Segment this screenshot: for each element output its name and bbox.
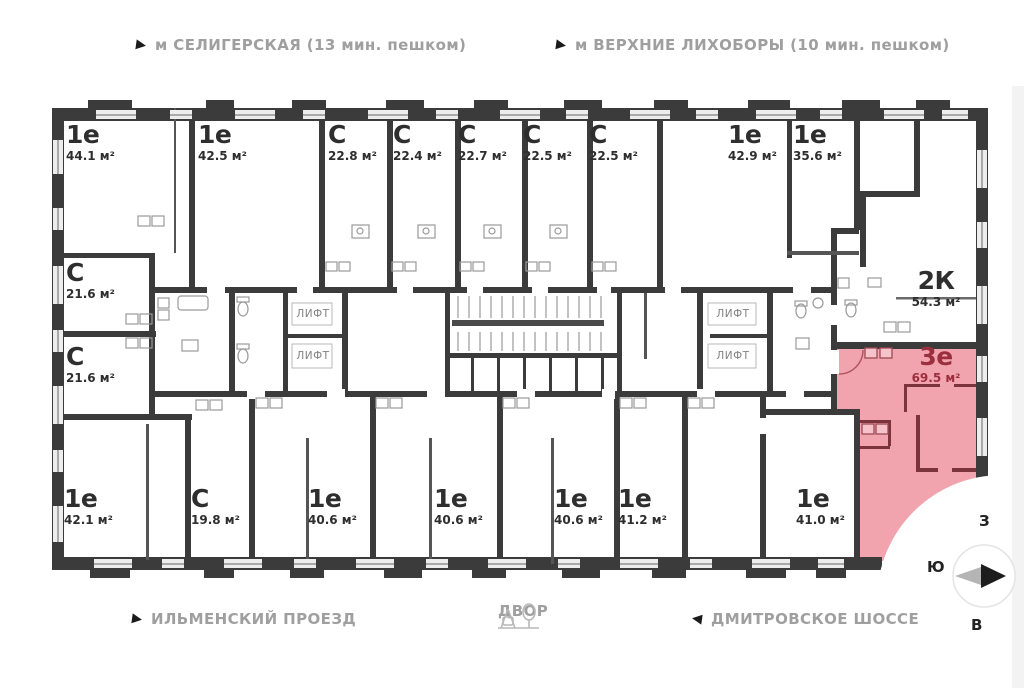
apartment-area: 41.2 м²: [618, 514, 667, 526]
apartment-unit[interactable]: С 22.5 м²: [589, 122, 638, 162]
apartment-type: 1е: [66, 122, 115, 147]
apartment-unit[interactable]: 1е 42.9 м²: [728, 122, 777, 162]
apartment-type: 2К: [900, 268, 972, 293]
apartment-unit[interactable]: 1е 40.6 м²: [434, 486, 483, 526]
apartment-unit[interactable]: С 21.6 м²: [66, 260, 115, 300]
street-label-ilmensky: ИЛЬМЕНСКИЙ ПРОЕЗД: [132, 610, 356, 628]
yard-label: ДВОР: [498, 602, 548, 620]
apartment-type: 1е: [796, 486, 845, 511]
apartment-type: 1е: [728, 122, 777, 147]
apartment-area: 42.5 м²: [198, 150, 247, 162]
compass: З Ю В: [905, 498, 1024, 658]
apartment-type: 1е: [64, 486, 113, 511]
street-label-dmitrovskoe: ДМИТРОВСКОЕ ШОССЕ: [692, 610, 919, 628]
apartment-area: 41.0 м²: [796, 514, 845, 526]
apartment-type: 1е: [434, 486, 483, 511]
apartment-area: 22.7 м²: [458, 150, 507, 162]
floor-plan: [0, 0, 1024, 688]
apartment-unit[interactable]: С 22.7 м²: [458, 122, 507, 162]
apartment-type: С: [458, 122, 507, 147]
apartment-area: 21.6 м²: [66, 372, 115, 384]
apartment-type: С: [523, 122, 572, 147]
apartment-type: 1е: [618, 486, 667, 511]
map-marker-icon: [135, 39, 146, 50]
apartment-unit[interactable]: 1е 40.6 м²: [554, 486, 603, 526]
apartment-unit[interactable]: 1е 41.2 м²: [618, 486, 667, 526]
apartment-area: 40.6 м²: [308, 514, 357, 526]
metro-label-likhobory: м ВЕРХНИЕ ЛИХОБОРЫ (10 мин. пешком): [556, 36, 950, 54]
street-label-text: ДМИТРОВСКОЕ ШОССЕ: [711, 610, 919, 628]
apartment-area: 22.8 м²: [328, 150, 377, 162]
apartment-area: 69.5 м²: [900, 372, 972, 384]
apartment-area: 22.4 м²: [393, 150, 442, 162]
apartment-area: 22.5 м²: [523, 150, 572, 162]
apartment-type: С: [589, 122, 638, 147]
map-marker-icon: [131, 613, 142, 624]
apartment-area: 40.6 м²: [434, 514, 483, 526]
apartment-type: С: [66, 344, 115, 369]
compass-south: Ю: [927, 558, 945, 576]
apartment-unit[interactable]: С 21.6 м²: [66, 344, 115, 384]
apartment-area: 40.6 м²: [554, 514, 603, 526]
apartment-type: 1е: [554, 486, 603, 511]
apartment-area: 19.8 м²: [191, 514, 240, 526]
compass-west: З: [979, 512, 990, 530]
map-marker-icon: [691, 613, 702, 624]
map-marker-icon: [555, 39, 566, 50]
apartment-unit-selected[interactable]: 3е 69.5 м²: [900, 344, 972, 384]
apartment-unit[interactable]: 1е 35.6 м²: [793, 122, 842, 162]
apartment-unit[interactable]: 1е 40.6 м²: [308, 486, 357, 526]
metro-label-seligerskaya: м СЕЛИГЕРСКАЯ (13 мин. пешком): [136, 36, 466, 54]
apartment-area: 42.1 м²: [64, 514, 113, 526]
apartment-area: 22.5 м²: [589, 150, 638, 162]
apartment-type: С: [66, 260, 115, 285]
apartment-type: 3е: [900, 344, 972, 369]
apartment-type: 1е: [198, 122, 247, 147]
street-label-text: ИЛЬМЕНСКИЙ ПРОЕЗД: [151, 610, 356, 628]
apartment-area: 21.6 м²: [66, 288, 115, 300]
stair-landing: [452, 320, 604, 326]
compass-east: В: [971, 616, 982, 634]
apartment-unit[interactable]: 1е 42.5 м²: [198, 122, 247, 162]
elevator-label: ЛИФТ: [702, 340, 764, 372]
apartment-unit[interactable]: 2К 54.3 м²: [900, 268, 972, 308]
apartment-area: 42.9 м²: [728, 150, 777, 162]
metro-label-text: м СЕЛИГЕРСКАЯ (13 мин. пешком): [155, 36, 466, 54]
apartment-unit[interactable]: С 22.8 м²: [328, 122, 377, 162]
elevator-label: ЛИФТ: [286, 299, 340, 329]
apartment-area: 44.1 м²: [66, 150, 115, 162]
apartment-type: 1е: [793, 122, 842, 147]
apartment-unit[interactable]: 1е 42.1 м²: [64, 486, 113, 526]
elevator-label: ЛИФТ: [286, 340, 340, 372]
apartment-unit[interactable]: С 19.8 м²: [191, 486, 240, 526]
yard-icon: [498, 602, 540, 632]
apartment-unit[interactable]: 1е 44.1 м²: [66, 122, 115, 162]
apartment-area: 35.6 м²: [793, 150, 842, 162]
apartment-unit[interactable]: 1е 41.0 м²: [796, 486, 845, 526]
apartment-unit[interactable]: С 22.5 м²: [523, 122, 572, 162]
apartment-unit[interactable]: С 22.4 м²: [393, 122, 442, 162]
fixtures: [126, 216, 910, 410]
compass-dial: [905, 498, 1024, 658]
apartment-type: С: [191, 486, 240, 511]
floorplan-page: м СЕЛИГЕРСКАЯ (13 мин. пешком) м ВЕРХНИЕ…: [0, 0, 1024, 688]
elevator-label: ЛИФТ: [702, 299, 764, 329]
apartment-type: С: [393, 122, 442, 147]
apartment-type: 1е: [308, 486, 357, 511]
apartment-area: 54.3 м²: [900, 296, 972, 308]
metro-label-text: м ВЕРХНИЕ ЛИХОБОРЫ (10 мин. пешком): [575, 36, 950, 54]
apartment-type: С: [328, 122, 377, 147]
